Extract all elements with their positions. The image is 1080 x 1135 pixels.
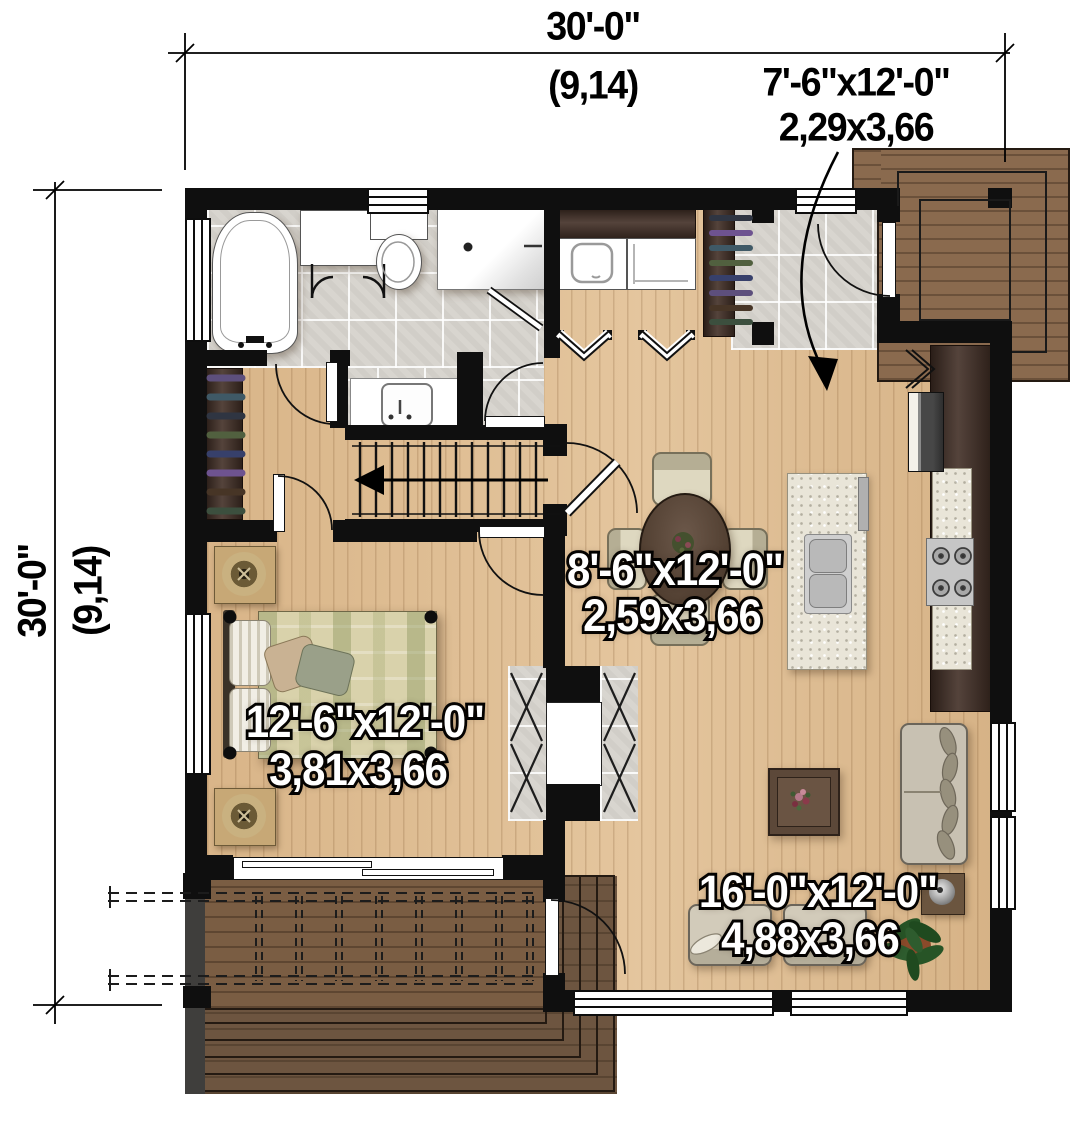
living-label-metric: 4,88x3,66 xyxy=(721,913,899,965)
entry-door-leaf xyxy=(882,222,896,298)
laundry-jamb-3 xyxy=(638,330,647,340)
wall-left-2 xyxy=(185,338,207,613)
stairs-newel-top xyxy=(543,424,567,456)
window-bedroom-left xyxy=(185,613,211,775)
lower-deck xyxy=(185,873,547,1010)
wall-center-vertical-2 xyxy=(543,820,565,902)
sofa xyxy=(900,723,968,865)
dining-label-metric: 2,59x3,66 xyxy=(583,590,761,642)
deck-post-top xyxy=(183,873,211,899)
closet-door-top-leaf xyxy=(326,362,338,422)
dimension-top-imperial: 30'-0" xyxy=(546,5,640,50)
bifold-closet-center xyxy=(546,702,602,786)
window-living-right-2 xyxy=(990,816,1016,910)
island-faucet xyxy=(858,477,869,531)
wall-bottom-1 xyxy=(543,990,573,1012)
range-stove xyxy=(926,538,974,606)
wall-entry-right-1 xyxy=(877,188,900,222)
floor-plan: 30'-0" (9,14) 7'-6"x12'-0" 2,29x3,66 30'… xyxy=(0,0,1080,1135)
shower xyxy=(437,208,546,290)
dimension-top-metric: (9,14) xyxy=(548,64,638,109)
dimension-left-imperial: 30'-0" xyxy=(11,544,56,638)
sliding-door-panel-2 xyxy=(362,869,494,876)
window-entry-top xyxy=(795,188,857,214)
bathtub xyxy=(212,212,298,354)
washer xyxy=(558,238,627,290)
wall-left-1 xyxy=(185,188,207,218)
bathtub-rim xyxy=(220,220,290,343)
laundry-jamb-1 xyxy=(555,330,564,340)
dryer xyxy=(627,238,696,290)
balcony-callout-metric: 2,29x3,66 xyxy=(779,106,934,151)
wall-bedroom-top-1 xyxy=(185,520,277,542)
refrigerator xyxy=(908,392,944,472)
sliding-door-panel-1 xyxy=(242,861,372,868)
vanity-sink xyxy=(381,383,433,427)
toilet-bowl xyxy=(376,234,422,290)
deck-edge-band xyxy=(185,873,205,1094)
walk-in-closet-rod xyxy=(205,368,243,520)
bathroom-door-leaf xyxy=(485,416,545,428)
living-label-imperial: 16'-0"x12'-0" xyxy=(699,866,937,918)
balcony-callout-imperial: 7'-6"x12'-0" xyxy=(762,61,949,106)
laundry-cabinet xyxy=(558,208,696,240)
island-sink-bowl-top xyxy=(809,539,847,573)
window-bathroom-top xyxy=(367,188,429,214)
coat-closet-jamb-top xyxy=(752,205,774,223)
nightstand-lamp-bottom xyxy=(222,794,266,838)
coat-closet xyxy=(703,208,735,337)
wall-bath-chase xyxy=(457,352,483,428)
closet-nook-tile-left xyxy=(508,666,546,821)
coffee-table-top xyxy=(777,777,831,827)
bedroom-sliding-door xyxy=(233,857,504,880)
bedroom-label-imperial: 12'-6"x12'-0" xyxy=(246,696,484,748)
window-bathroom-left xyxy=(185,218,211,342)
window-living-bottom-2 xyxy=(790,990,908,1016)
bedroom-door-leaf xyxy=(479,526,545,538)
window-living-bottom-1 xyxy=(573,990,774,1016)
window-living-right-1 xyxy=(990,722,1016,812)
deck-post-bottom xyxy=(183,986,211,1008)
wall-kitchen-top xyxy=(877,321,1012,343)
island-sink-bowl-bottom xyxy=(809,574,847,608)
wall-right-2 xyxy=(990,906,1012,1012)
wall-top-2 xyxy=(425,188,795,210)
closet-nook-tile-right xyxy=(600,666,638,821)
bifold-closet-cap-top xyxy=(546,666,600,702)
coat-closet-jamb-bottom xyxy=(752,322,774,345)
dining-label-imperial: 8'-6"x12'-0" xyxy=(567,544,783,596)
nightstand-lamp-top xyxy=(222,552,266,596)
balcony-post xyxy=(988,188,1012,208)
laundry-jamb-4 xyxy=(686,330,695,340)
living-deck-door-leaf xyxy=(545,898,559,976)
wall-right-1 xyxy=(990,343,1012,722)
bedroom-label-metric: 3,81x3,66 xyxy=(269,744,447,796)
coffee-table xyxy=(768,768,840,836)
dimension-left-metric: (9,14) xyxy=(67,546,112,636)
closet-door-bottom-leaf xyxy=(273,474,285,532)
bifold-closet-cap-bottom xyxy=(546,784,600,821)
laundry-jamb-2 xyxy=(603,330,612,340)
wall-center-vertical-1 xyxy=(543,520,565,668)
wall-closet-top-1 xyxy=(185,350,267,366)
wall-top-1 xyxy=(185,188,367,210)
